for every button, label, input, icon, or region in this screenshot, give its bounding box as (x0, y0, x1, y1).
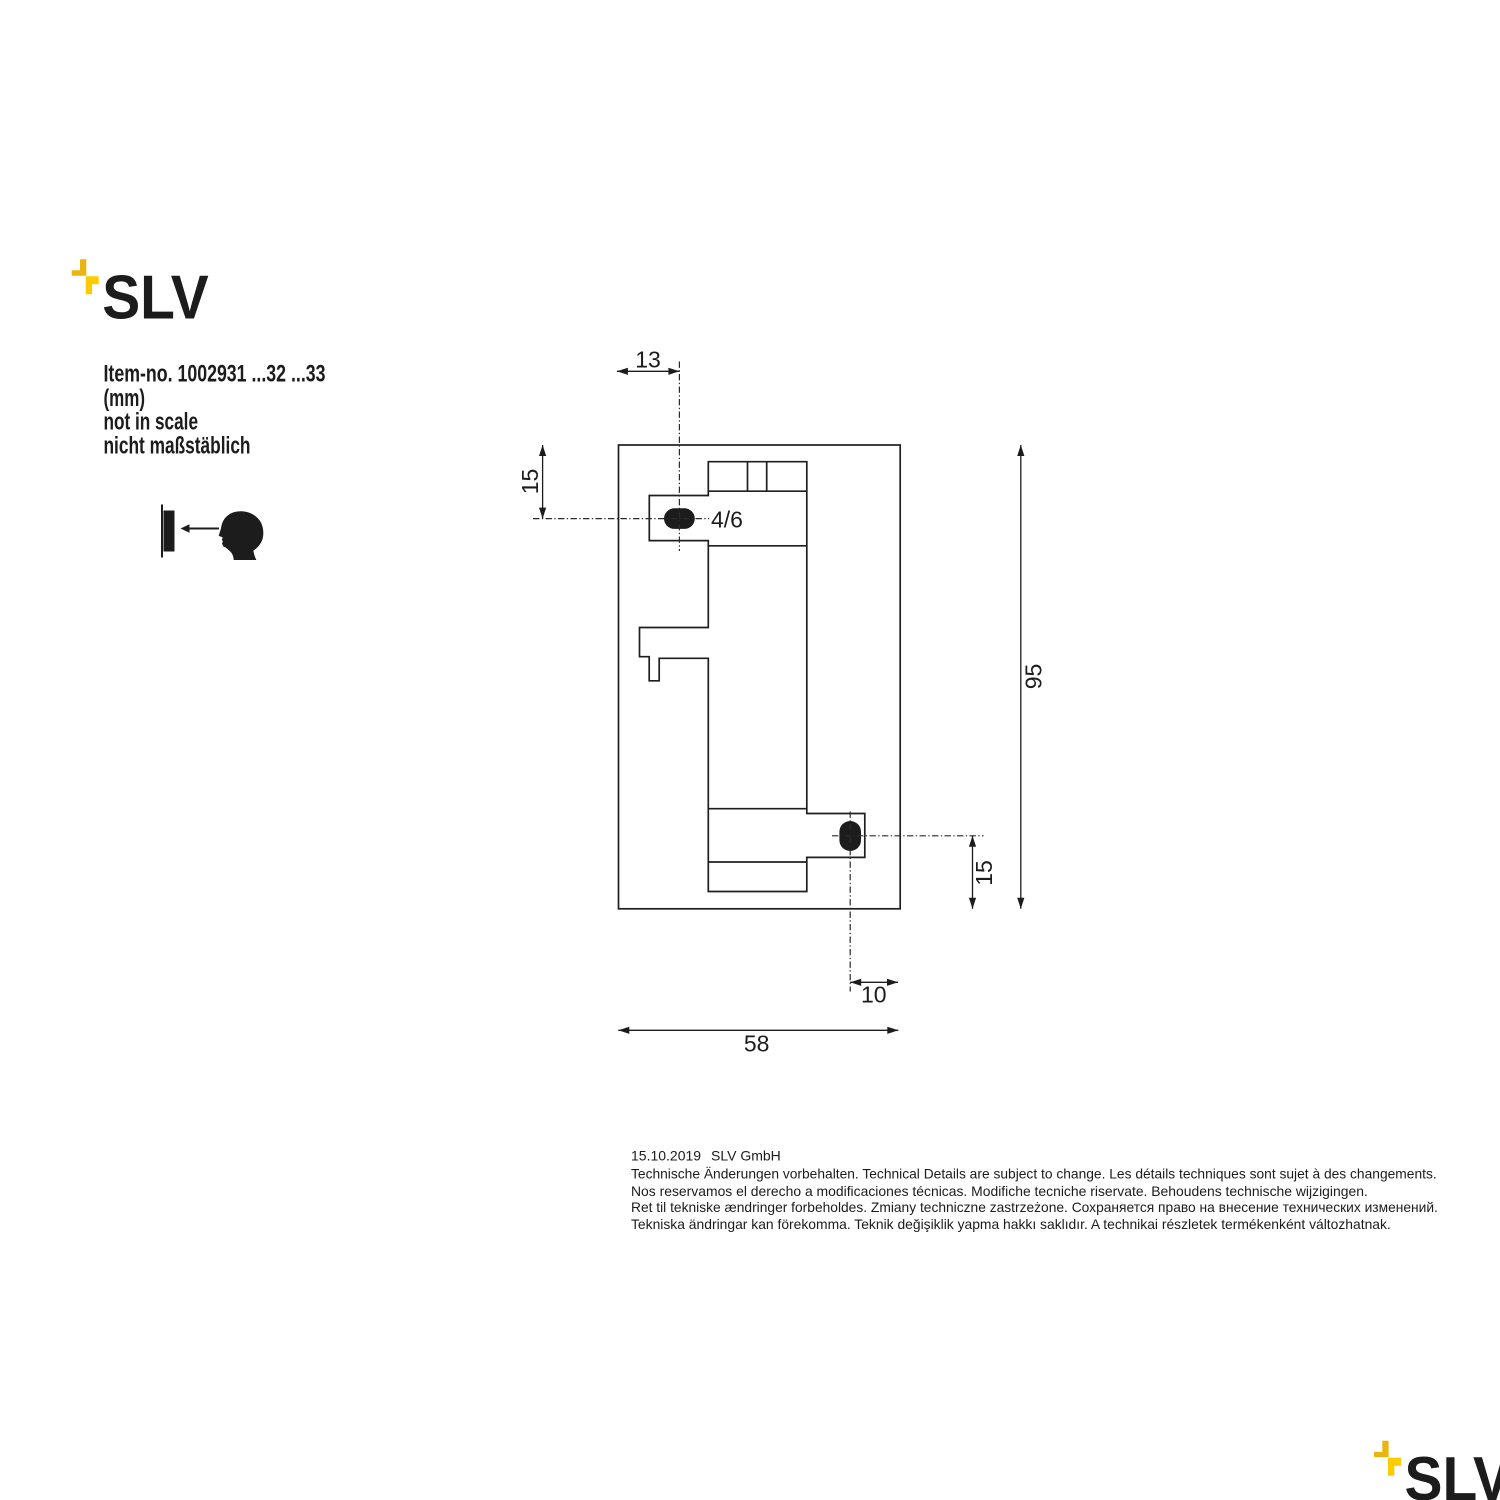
svg-text:4/6: 4/6 (711, 506, 743, 532)
svg-text:Item-no. 1002931 ...32 ...33: Item-no. 1002931 ...32 ...33 (104, 362, 326, 388)
svg-text:10: 10 (861, 982, 887, 1008)
svg-text:13: 13 (635, 347, 661, 373)
svg-text:15: 15 (971, 860, 997, 886)
svg-text:Tekniska ändringar kan förekom: Tekniska ändringar kan förekomma. Teknik… (631, 1216, 1391, 1232)
svg-text:15.10.2019: 15.10.2019 (631, 1148, 701, 1164)
svg-text:nicht maßstäblich: nicht maßstäblich (104, 433, 251, 459)
svg-text:SLV GmbH: SLV GmbH (711, 1148, 781, 1164)
svg-text:SLV: SLV (1405, 1444, 1500, 1500)
svg-text:SLV: SLV (102, 263, 209, 333)
svg-text:Ret til tekniske ændringer for: Ret til tekniske ændringer forbeholdes. … (631, 1199, 1438, 1215)
svg-text:15: 15 (517, 469, 543, 495)
svg-text:Technische Änderungen vorbehal: Technische Änderungen vorbehalten. Techn… (631, 1165, 1437, 1181)
svg-text:58: 58 (744, 1030, 770, 1056)
svg-text:Nos reservamos el derecho a mo: Nos reservamos el derecho a modificacion… (631, 1183, 1368, 1199)
svg-text:not in scale: not in scale (104, 410, 199, 436)
svg-text:95: 95 (1020, 664, 1046, 690)
svg-text:(mm): (mm) (104, 386, 146, 412)
